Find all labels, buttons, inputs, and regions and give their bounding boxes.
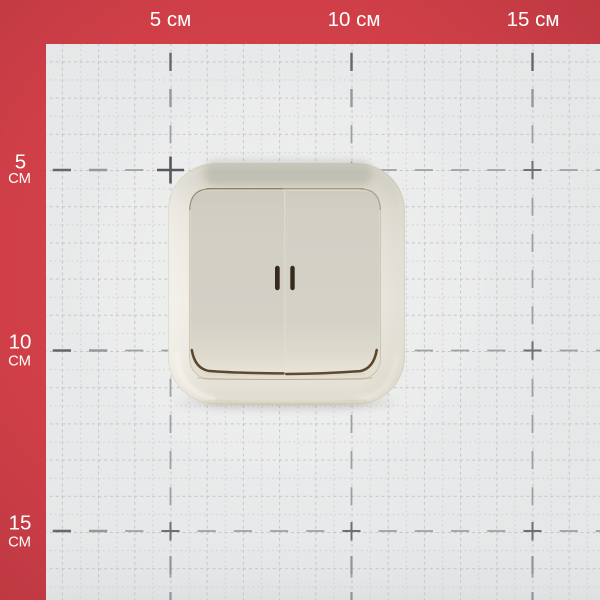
- svg-text:СМ: СМ: [8, 535, 31, 551]
- svg-text:15 см: 15 см: [507, 8, 560, 31]
- svg-text:СМ: СМ: [8, 171, 31, 187]
- svg-text:5 см: 5 см: [150, 8, 191, 31]
- svg-text:СМ: СМ: [8, 354, 31, 370]
- svg-text:10 см: 10 см: [328, 8, 381, 31]
- svg-text:15: 15: [9, 512, 32, 535]
- svg-text:10: 10: [9, 331, 32, 354]
